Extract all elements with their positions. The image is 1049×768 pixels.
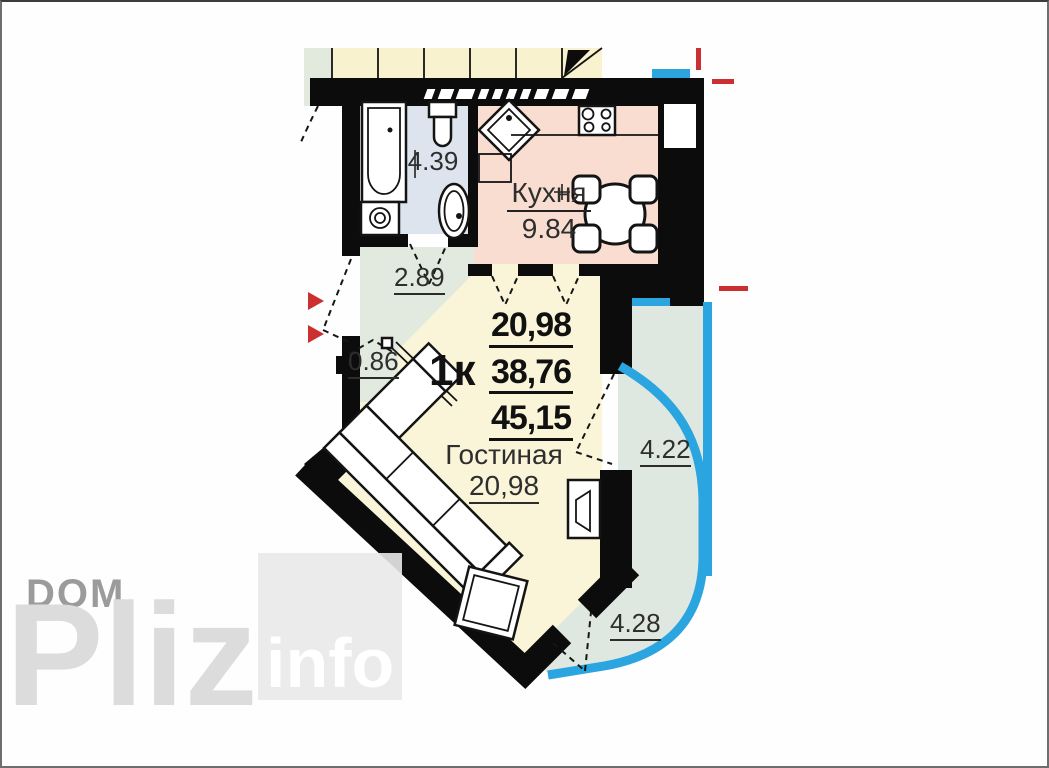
washing-machine [361, 202, 399, 235]
entrance-arrows [308, 292, 324, 343]
floor-plan-page: DOM Pliz [0, 0, 1049, 768]
stove [579, 106, 615, 135]
coffee-table [455, 567, 528, 640]
apartment-type-label: 1к [429, 346, 476, 396]
balcony-bottom-area-label: 4.28 [610, 608, 661, 641]
kitchen-fraction-line [507, 210, 591, 212]
kitchen-label: Кухня 9.84 [494, 178, 604, 244]
bathroom-area-label: 4.39 [400, 148, 466, 175]
living-room-name: Гостиная [439, 440, 569, 469]
closet-area-label: 0.86 [348, 346, 399, 379]
kitchen-name: Кухня [494, 178, 604, 207]
summary-living-area: 20,98 [489, 308, 573, 348]
balcony-right-area-label: 4.22 [640, 434, 691, 467]
living-room-area: 20,98 [469, 470, 539, 504]
apartment-area-summary: 20,98 38,76 45,15 [489, 308, 573, 448]
tv-stand [568, 480, 600, 538]
hall-area-label: 2.89 [394, 262, 445, 295]
kitchen-area: 9.84 [494, 214, 604, 243]
toilet [429, 102, 456, 146]
bathroom-sink [439, 184, 469, 238]
summary-total-area: 45,15 [489, 401, 573, 441]
watermark-info-text: info [266, 628, 394, 698]
watermark-info-badge: info [258, 553, 402, 700]
living-room-label: Гостиная 20,98 [439, 440, 569, 501]
summary-apartment-area: 38,76 [489, 355, 573, 395]
